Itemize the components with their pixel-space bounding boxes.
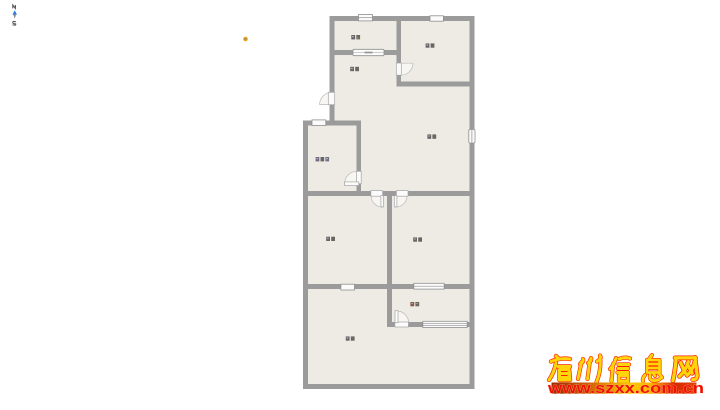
svg-text:www.szxx.com.cn: www.szxx.com.cn — [547, 381, 704, 397]
